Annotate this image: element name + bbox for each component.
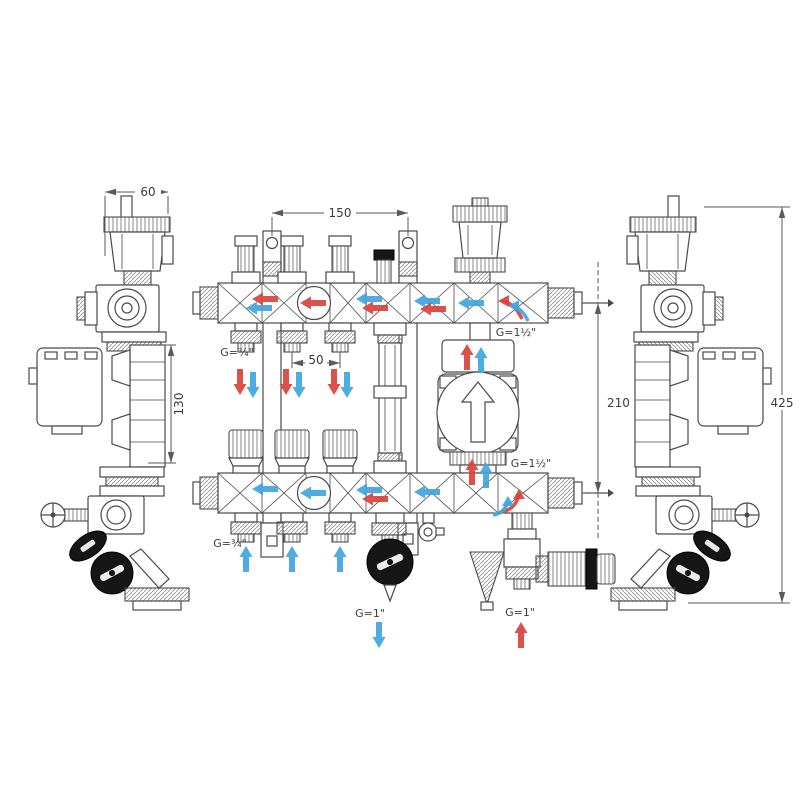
right-side-view xyxy=(611,196,771,610)
clamp-upper xyxy=(112,350,130,386)
air-vent-body xyxy=(110,232,165,271)
top-bar-end-fitting xyxy=(548,288,574,318)
drain-valve xyxy=(419,513,444,541)
bottom-spindle-tip xyxy=(608,489,614,497)
supply-main-arrow xyxy=(515,622,528,648)
label-bottom-main: G=1½" xyxy=(511,457,551,470)
sensor-pocket xyxy=(374,250,394,283)
bottom-bar-end-fitting xyxy=(548,478,574,508)
strainer-cone xyxy=(470,552,504,604)
dimension-valve-offset-label: 130 xyxy=(172,393,186,416)
air-vent-stub xyxy=(121,196,132,218)
drawing-svg: 60 150 50 130 xyxy=(0,0,800,800)
top-spindle-tip xyxy=(608,299,614,307)
dimension-bracket-spacing-label: 150 xyxy=(329,206,352,220)
flow-meter xyxy=(374,323,406,473)
vent-lever xyxy=(162,236,173,264)
top-vent-stubs xyxy=(232,236,354,283)
front-view xyxy=(193,198,615,610)
dimension-outlet-pitch-label: 50 xyxy=(308,353,323,367)
manifold-edge-column xyxy=(130,345,165,467)
label-supply-bottom: G=1" xyxy=(505,606,535,619)
dimension-bracket-spacing: 150 xyxy=(272,206,408,236)
thermostatic-head xyxy=(548,552,586,586)
dimension-bar-distance-label: 210 xyxy=(607,396,630,410)
pump-motor-side xyxy=(37,348,102,426)
clamp-lower xyxy=(112,414,130,450)
bottom-manifold-bar xyxy=(193,473,614,513)
thermostatic-handwheels xyxy=(229,430,357,473)
elbow-pipe xyxy=(130,549,169,588)
dimension-outlet-pitch: 50 xyxy=(292,352,340,368)
manifold-technical-drawing: 60 150 50 130 xyxy=(0,0,800,800)
dimension-total-height-label: 425 xyxy=(771,396,794,410)
left-side-view xyxy=(29,196,189,610)
bottom-bar-outlets xyxy=(231,513,355,542)
return-main-arrow xyxy=(373,622,386,648)
air-vent xyxy=(453,198,507,283)
dimension-depth-label: 60 xyxy=(140,185,155,199)
lower-valve-body xyxy=(88,496,144,534)
label-return-bottom: G=1" xyxy=(355,607,385,620)
air-vent-cap xyxy=(104,217,170,232)
label-top-main: G=1½" xyxy=(496,326,536,339)
label-top-outlets: G=¾" xyxy=(220,346,253,359)
ball-valve-body xyxy=(96,285,159,332)
label-bottom-outlets: G=¾" xyxy=(213,537,246,550)
pump-assembly xyxy=(437,323,519,473)
mixing-valve-assembly xyxy=(470,513,615,610)
shutoff-black-knob xyxy=(367,513,413,601)
tee-body xyxy=(504,539,540,567)
